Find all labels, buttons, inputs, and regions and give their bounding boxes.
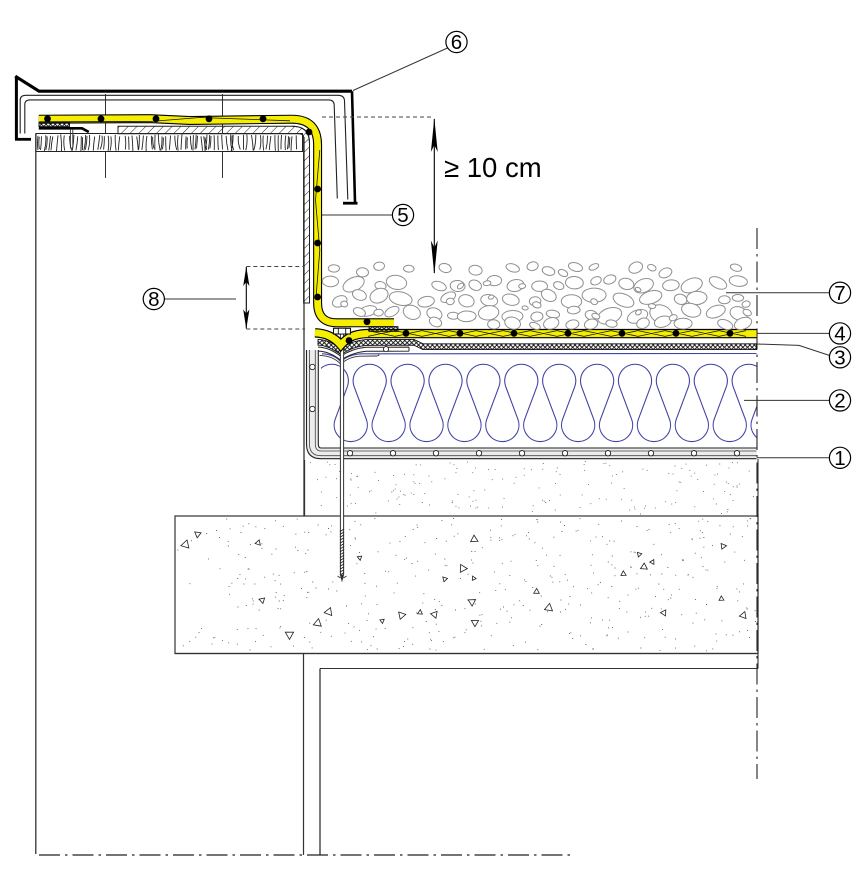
svg-text:7: 7 (834, 282, 845, 305)
svg-text:5: 5 (397, 204, 408, 227)
svg-text:4: 4 (834, 323, 845, 346)
svg-text:6: 6 (451, 31, 462, 54)
svg-text:8: 8 (148, 288, 159, 311)
svg-text:2: 2 (834, 390, 845, 413)
svg-text:3: 3 (834, 347, 845, 370)
svg-text:1: 1 (834, 447, 845, 470)
svg-text:≥ 10 cm: ≥ 10 cm (444, 152, 542, 183)
